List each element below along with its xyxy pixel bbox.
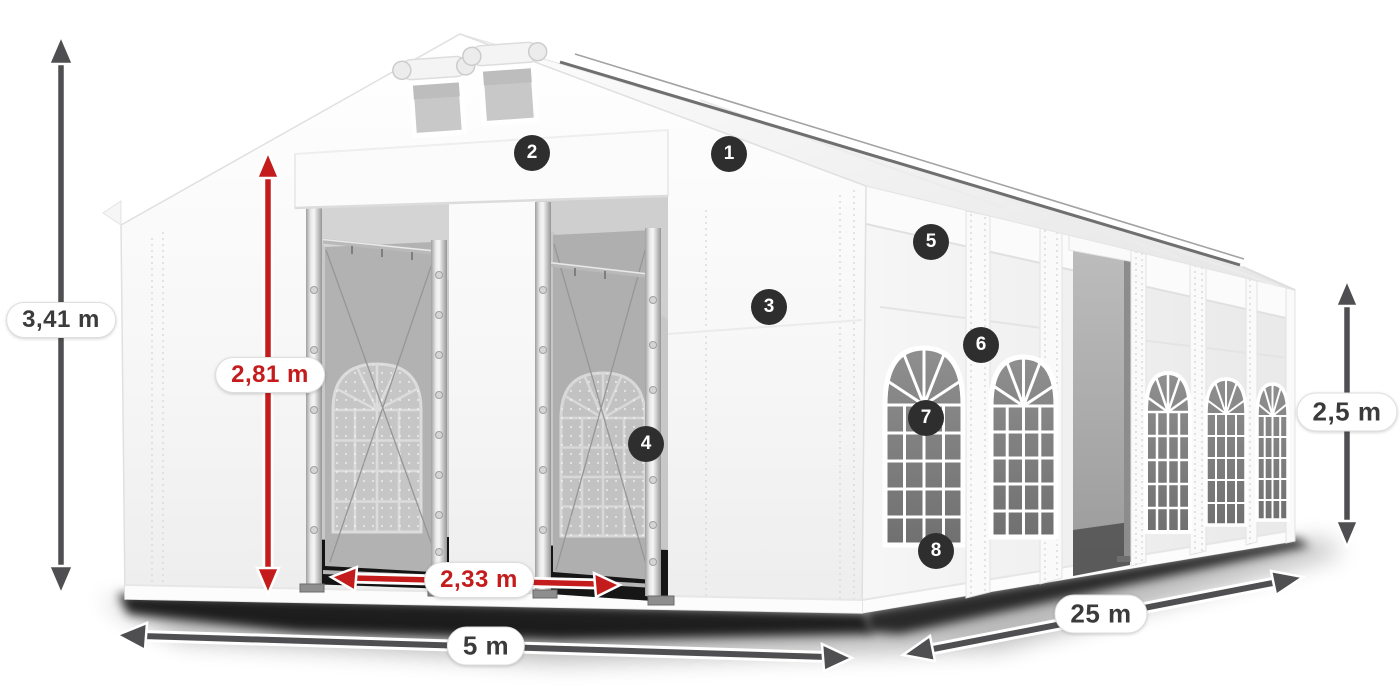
side-window-4 bbox=[1206, 378, 1246, 525]
marker-1: 1 bbox=[711, 136, 747, 172]
side-doorway-open bbox=[1069, 235, 1135, 576]
side-window-3 bbox=[1146, 372, 1190, 532]
eave-overhang bbox=[103, 201, 121, 225]
dim-label-side-length: 25 m bbox=[1054, 595, 1147, 634]
dim-label-door-height: 2,81 m bbox=[215, 357, 325, 393]
front-door-right bbox=[535, 196, 668, 602]
door-pole bbox=[645, 228, 661, 598]
marker-7: 7 bbox=[908, 400, 944, 436]
marker-6: 6 bbox=[963, 327, 999, 363]
dim-label-total-height: 3,41 m bbox=[6, 302, 116, 338]
tent-illustration bbox=[0, 0, 1400, 700]
side-window-1 bbox=[885, 347, 963, 545]
marker-5: 5 bbox=[913, 224, 949, 260]
dim-label-door-width: 2,33 m bbox=[424, 562, 534, 598]
tent-dimensions-diagram: 3,41 m 2,81 m 2,33 m 5 m 25 m 2,5 m 1 2 … bbox=[0, 0, 1400, 700]
front-door-left bbox=[306, 203, 449, 592]
dim-label-side-height: 2,5 m bbox=[1297, 393, 1398, 432]
marker-2: 2 bbox=[514, 135, 550, 171]
marker-8: 8 bbox=[918, 533, 954, 569]
curtain-window-pattern bbox=[333, 363, 421, 532]
side-window-5 bbox=[1257, 383, 1288, 520]
door-pole bbox=[431, 240, 447, 592]
dim-label-front-width: 5 m bbox=[447, 627, 525, 666]
marker-4: 4 bbox=[628, 426, 664, 462]
marker-3: 3 bbox=[751, 289, 787, 325]
side-window-2 bbox=[991, 356, 1056, 537]
